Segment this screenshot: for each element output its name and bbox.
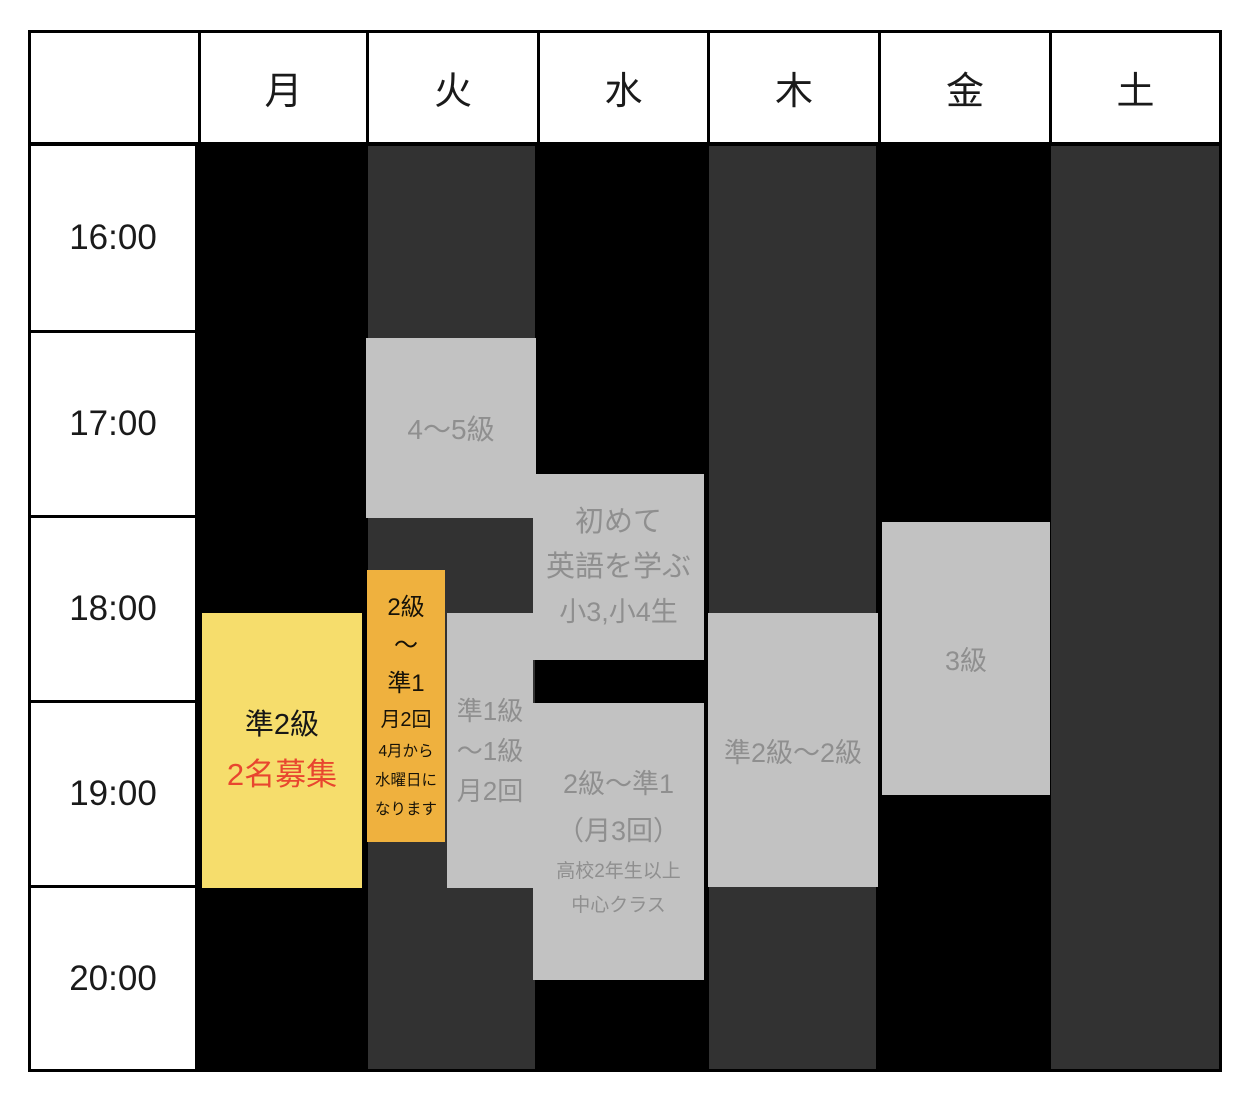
- event-tue-pre1-grade1: 準1級 〜1級 月2回: [447, 613, 533, 888]
- time-label-2000: 20:00: [31, 888, 198, 1069]
- event-line: （月3回）: [557, 808, 680, 854]
- event-line: 準1級: [457, 691, 523, 731]
- event-line: 2級〜準1: [563, 761, 674, 808]
- event-line: 3級: [945, 639, 987, 678]
- time-label-1600: 16:00: [31, 146, 198, 333]
- event-line: 準1: [387, 665, 424, 703]
- event-line: 初めて: [575, 500, 662, 545]
- event-line: 4〜5級: [407, 408, 494, 448]
- event-fri-grade3: 3級: [882, 522, 1050, 795]
- event-tue-grade4-5: 4〜5級: [366, 338, 536, 518]
- day-header-fri: 金: [878, 33, 1049, 146]
- time-label-1700: 17:00: [31, 333, 198, 518]
- event-line: 準2級〜2級: [724, 731, 862, 770]
- day-header-thu: 木: [707, 33, 878, 146]
- day-header-sat: 土: [1049, 33, 1219, 146]
- event-line: 〜: [394, 627, 418, 665]
- event-line: 〜1級: [457, 731, 523, 771]
- event-note-line: 水曜日に: [375, 766, 437, 795]
- event-line: 準2級: [245, 701, 319, 749]
- event-note-line: 4月から: [378, 737, 433, 766]
- event-note-line: 高校2年生以上: [556, 854, 681, 890]
- day-header-wed: 水: [537, 33, 707, 146]
- event-tue-grade2-pre1-moving: 2級 〜 準1 月2回 4月から 水曜日に なります: [367, 570, 445, 842]
- header-empty-cell: [31, 33, 198, 146]
- event-note-line: なります: [375, 795, 437, 824]
- day-header-tue: 火: [366, 33, 537, 146]
- event-note-line: 中心クラス: [571, 890, 666, 922]
- event-wed-beginner: 初めて 英語を学ぶ 小3,小4生: [533, 474, 704, 660]
- event-mon-pre2-recruiting: 準2級 2名募集: [202, 613, 362, 888]
- day-header-mon: 月: [198, 33, 366, 146]
- time-label-1800: 18:00: [31, 518, 198, 703]
- event-thu-pre2-grade2: 準2級〜2級: [708, 613, 878, 887]
- event-recruit-line: 2名募集: [227, 749, 337, 801]
- event-wed-grade2-pre1: 2級〜準1 （月3回） 高校2年生以上 中心クラス: [533, 703, 704, 980]
- time-label-1900: 19:00: [31, 703, 198, 888]
- event-line: 小3,小4生: [559, 590, 678, 635]
- column-bg-sat: [1051, 146, 1219, 1069]
- event-line: 月2回: [457, 771, 523, 811]
- event-line: 2級: [387, 589, 424, 627]
- weekly-schedule-table: 月 火 水 木 金 土 16:00 17:00 18:00 19:00 20:0…: [0, 0, 1254, 1112]
- event-line: 英語を学ぶ: [546, 545, 691, 590]
- column-bg-thu: [709, 146, 876, 1069]
- event-line: 月2回: [380, 703, 431, 737]
